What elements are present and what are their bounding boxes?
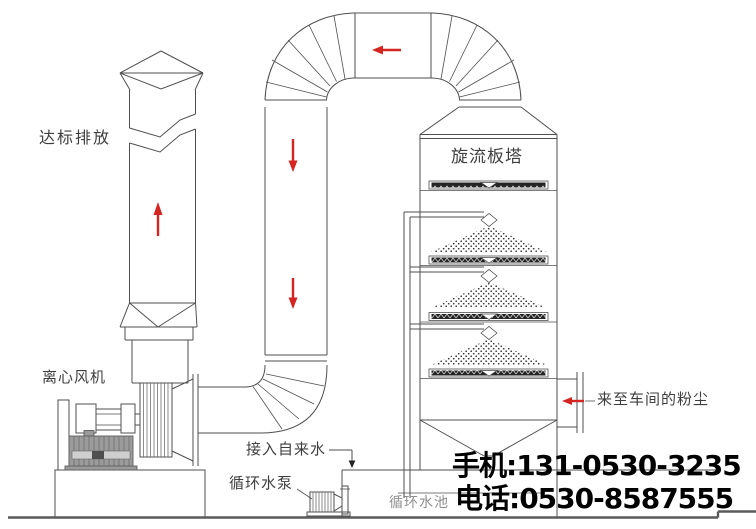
contact-phone-number: 电话:0530-8587555 — [455, 477, 733, 517]
fan-shaft — [96, 409, 121, 430]
spray-nozzle-2 — [481, 270, 497, 283]
tower-inlet-funnel — [420, 107, 557, 135]
stack-flare-joint — [120, 303, 197, 340]
spray-cone-3 — [431, 339, 547, 365]
spray-nozzle-1 — [481, 214, 497, 227]
centrifugal-fan — [55, 374, 205, 517]
circulation-pump — [297, 486, 350, 516]
inlet-left-arrow — [562, 397, 584, 405]
label-circulation-pump: 循环水泵 — [229, 475, 293, 492]
lower-elbow — [246, 365, 327, 433]
top-duct — [353, 13, 433, 78]
stack-up-arrow — [154, 202, 163, 236]
upper-right-elbow — [433, 13, 521, 100]
label-tap-water: 接入自来水 — [246, 441, 326, 458]
scrubber-diagram: 达标排放 离心风机 旋流板塔 来至车间的粉尘 接入自来水 循环水泵 循环水池 手… — [0, 0, 756, 529]
ductwork — [198, 13, 557, 433]
spray-cone-2 — [431, 282, 547, 308]
flow-arrows — [154, 46, 585, 406]
rain-cap-icon — [120, 51, 203, 90]
label-circulation-pool: 循环水池 — [389, 495, 449, 511]
dust-inlet-duct — [557, 372, 595, 433]
stack-break-symbol — [130, 114, 196, 152]
fan-drum — [140, 383, 172, 457]
spray-nozzle-3 — [481, 327, 497, 340]
exhaust-stack — [120, 51, 203, 383]
swirl-plate-2 — [420, 256, 557, 266]
label-discharge: 达标排放 — [39, 129, 111, 147]
swirl-plate-4 — [420, 369, 557, 379]
top-duct-left-arrow — [372, 46, 401, 55]
swirl-plate-1 — [420, 181, 557, 191]
fan-motor — [65, 431, 137, 471]
fan-inlet-cone — [172, 374, 198, 466]
swirl-plate-3 — [420, 313, 557, 323]
downcomer-upper-arrow — [289, 139, 298, 172]
label-cyclone-plate-tower: 旋流板塔 — [451, 148, 523, 168]
label-dust-inlet: 来至车间的粉尘 — [597, 391, 709, 408]
tap-water-line — [329, 450, 355, 468]
downcomer-lower-arrow — [289, 278, 298, 309]
label-centrifugal-fan: 离心风机 — [42, 369, 106, 386]
fan-pedestal — [55, 470, 205, 517]
upper-left-elbow — [265, 13, 353, 100]
spray-cone-1 — [431, 226, 547, 252]
down-arrow-icon — [349, 461, 356, 469]
